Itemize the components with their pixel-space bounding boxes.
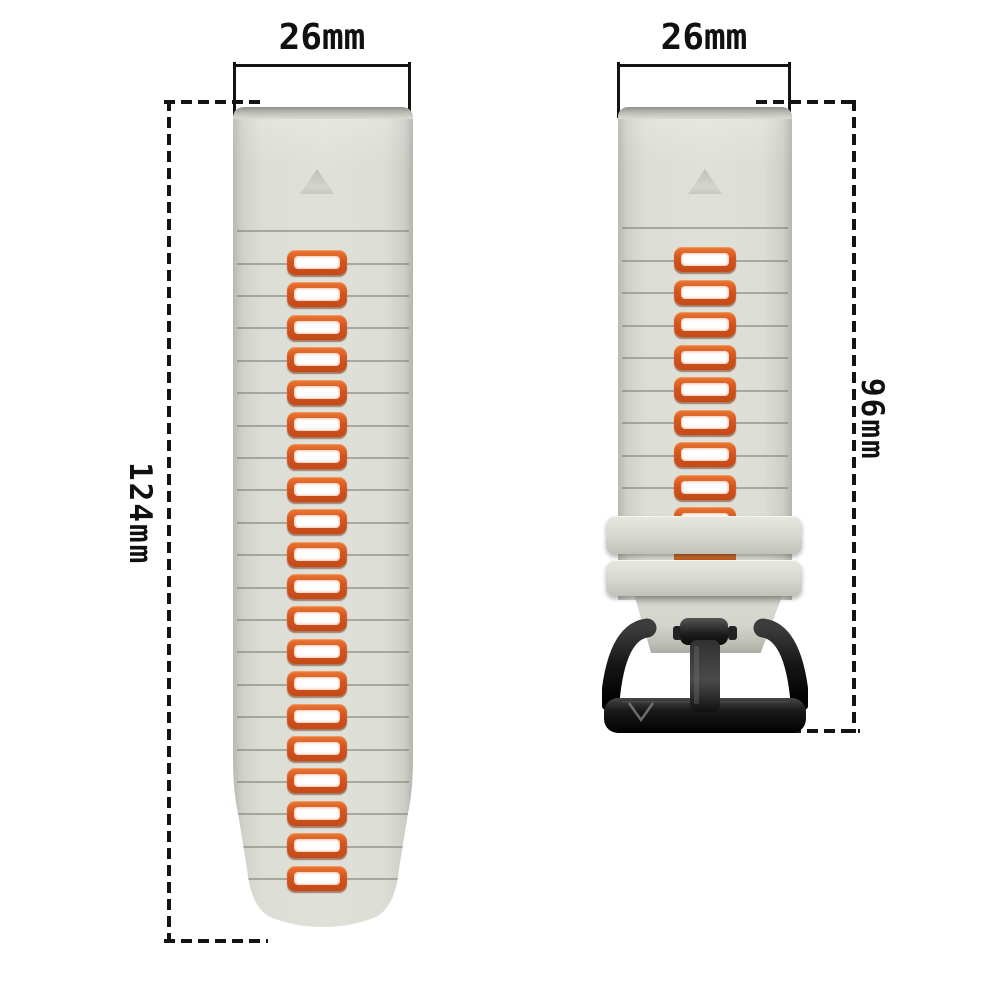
- pin-buckle: [602, 606, 808, 736]
- strap-hole: [287, 444, 347, 469]
- strap-hole: [287, 250, 347, 275]
- strap-hole-inner: [681, 253, 729, 266]
- left-width-dimension-line: [234, 64, 411, 67]
- right-width-dimension-line: [619, 64, 790, 67]
- strap-hole: [287, 606, 347, 631]
- left-band-width-label: 26mm: [233, 20, 411, 56]
- right-length-extension-top: [756, 100, 856, 104]
- strap-hole: [674, 442, 736, 467]
- strap-hole-inner: [681, 481, 729, 494]
- strap-hole: [674, 247, 736, 272]
- keeper-loop-2: [606, 560, 802, 596]
- strap-hole: [287, 768, 347, 793]
- right-band-top-edge: [618, 107, 792, 119]
- strap-hole-inner: [294, 710, 340, 723]
- strap-hole: [287, 542, 347, 567]
- right-band-width-label: 26mm: [617, 20, 791, 56]
- strap-hole: [287, 736, 347, 761]
- triangle-marker-icon: [688, 169, 722, 194]
- strap-hole-inner: [294, 548, 340, 561]
- left-length-extension-bottom: [164, 939, 268, 943]
- strap-hole: [287, 833, 347, 858]
- strap-hole: [674, 312, 736, 337]
- strap-hole-inner: [294, 321, 340, 334]
- strap-hole-inner: [681, 448, 729, 461]
- strap-hole-inner: [294, 386, 340, 399]
- strap-hole: [287, 315, 347, 340]
- strap-hole-inner: [294, 612, 340, 625]
- keeper-loop-1: [606, 516, 802, 554]
- strap-hole-inner: [681, 286, 729, 299]
- strap-hole-inner: [294, 288, 340, 301]
- strap-hole-inner: [294, 807, 340, 820]
- band-size-diagram: 26mm 26mm 124mm 96mm: [0, 0, 1000, 1000]
- right-band-length-label: 96mm: [856, 378, 887, 461]
- strap-hole-inner: [294, 580, 340, 593]
- strap-hole-inner: [294, 483, 340, 496]
- strap-hole: [287, 509, 347, 534]
- strap-hole-inner: [681, 351, 729, 364]
- left-band-top-edge: [233, 107, 413, 119]
- strap-hole-inner: [294, 450, 340, 463]
- strap-hole-inner: [294, 872, 340, 885]
- strap-hole-inner: [294, 418, 340, 431]
- strap-groove: [622, 227, 788, 229]
- strap-hole: [287, 347, 347, 372]
- strap-hole: [287, 866, 347, 891]
- strap-hole-inner: [681, 416, 729, 429]
- strap-hole-inner: [294, 645, 340, 658]
- strap-hole: [287, 639, 347, 664]
- strap-hole: [674, 377, 736, 402]
- triangle-marker-icon: [300, 169, 334, 194]
- strap-groove: [237, 230, 409, 232]
- strap-hole-inner: [294, 515, 340, 528]
- strap-hole: [674, 475, 736, 500]
- strap-hole: [287, 380, 347, 405]
- strap-hole: [287, 671, 347, 696]
- strap-hole: [287, 282, 347, 307]
- strap-hole-inner: [294, 353, 340, 366]
- left-band: [233, 107, 413, 933]
- strap-hole: [674, 345, 736, 370]
- left-length-extension-top: [164, 100, 266, 104]
- strap-hole-inner: [294, 677, 340, 690]
- strap-hole-inner: [681, 383, 729, 396]
- strap-hole-inner: [294, 839, 340, 852]
- strap-hole: [287, 412, 347, 437]
- tang-pivot-right: [728, 626, 737, 640]
- tang-highlight: [694, 646, 699, 704]
- strap-hole: [287, 801, 347, 826]
- left-length-dimension-line: [167, 100, 171, 942]
- left-width-tick-left: [233, 62, 236, 118]
- strap-hole: [287, 477, 347, 502]
- strap-hole: [287, 704, 347, 729]
- strap-hole: [287, 574, 347, 599]
- strap-hole-inner: [294, 774, 340, 787]
- strap-hole: [674, 280, 736, 305]
- strap-hole-inner: [681, 318, 729, 331]
- left-band-length-label: 124mm: [124, 462, 155, 565]
- strap-hole: [674, 410, 736, 435]
- strap-hole-inner: [294, 256, 340, 269]
- strap-hole-inner: [294, 742, 340, 755]
